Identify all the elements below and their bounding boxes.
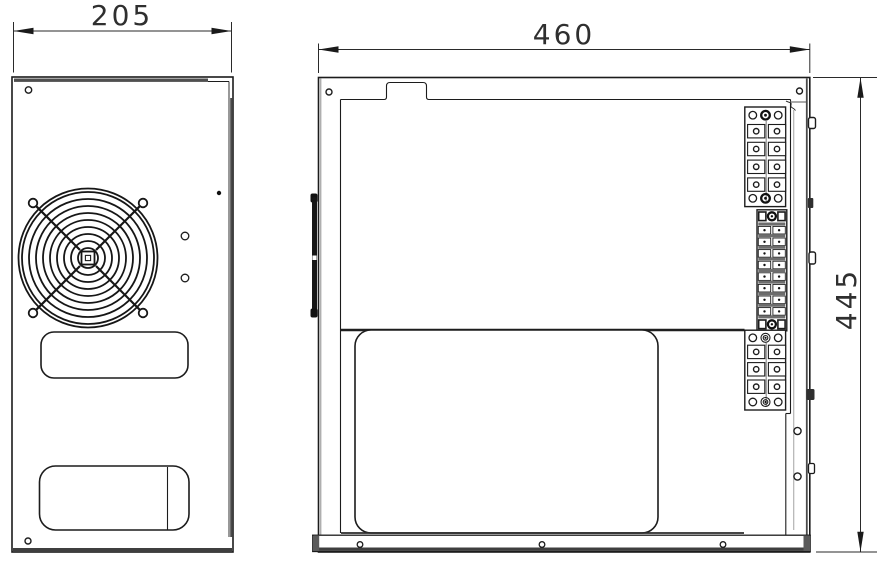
dimension-height-label: 445 xyxy=(830,268,863,330)
terminal-block-top xyxy=(745,107,786,207)
strip-end xyxy=(759,320,785,329)
dimension-height: 445 xyxy=(813,78,877,553)
rail-end-cap xyxy=(804,536,811,551)
dimension-side-width: 460 xyxy=(319,18,810,73)
right-view xyxy=(311,78,816,553)
edge-clip-icon xyxy=(808,198,814,208)
strip-end xyxy=(759,212,785,221)
arrowhead-right-icon xyxy=(212,28,232,34)
arrowhead-left-icon xyxy=(319,46,339,52)
service-cutout xyxy=(355,330,658,533)
pilot-hole xyxy=(217,191,221,195)
vent-slot-upper xyxy=(41,332,188,378)
arrowhead-up-icon xyxy=(857,78,863,98)
vent-slot-lower xyxy=(40,466,190,530)
rail-bottom-edge xyxy=(314,548,809,551)
dimension-side-width-label: 460 xyxy=(533,18,595,51)
arrowhead-right-icon xyxy=(790,46,810,52)
terminal-block-bottom xyxy=(745,330,786,410)
edge-clip-icon xyxy=(807,389,815,400)
edge-clip-icon xyxy=(809,118,816,129)
edge-clip-icon xyxy=(809,464,815,474)
dimension-left-width-label: 205 xyxy=(91,0,153,32)
bottom-fold-edge xyxy=(13,548,232,551)
drawing-sheet: 205 460 445 xyxy=(0,0,879,562)
drawing-canvas: 205 460 445 xyxy=(0,0,879,562)
hinge-bar xyxy=(311,194,318,318)
left-view xyxy=(12,77,233,552)
edge-clip-icon xyxy=(809,252,816,264)
hub-square xyxy=(82,252,95,265)
bottom-rail xyxy=(313,535,811,551)
dimension-left-width: 205 xyxy=(14,0,232,73)
top-fold-edge xyxy=(14,79,208,82)
arrowhead-left-icon xyxy=(14,28,34,34)
rail-end-cap xyxy=(313,536,320,551)
arrowhead-down-icon xyxy=(857,532,863,552)
terminal-strip-din xyxy=(757,210,787,331)
